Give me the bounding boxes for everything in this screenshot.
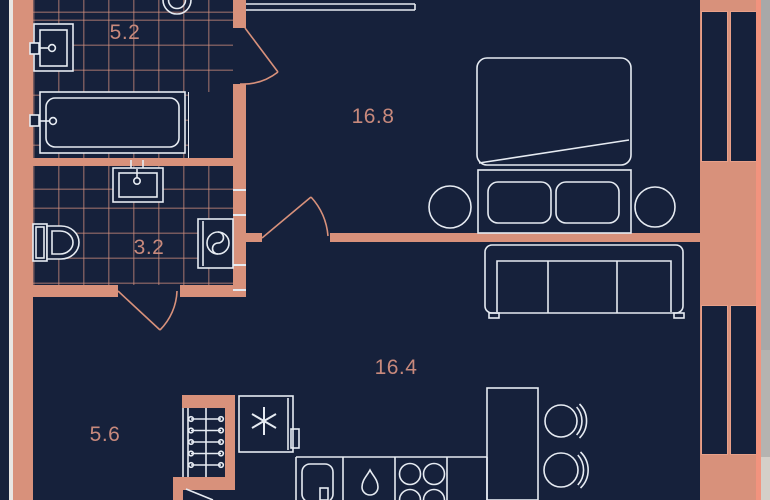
nightstand-icon [429,186,471,228]
washing-machine-icon [198,219,233,268]
ceiling-light-icon [163,0,191,14]
dining-table-icon [487,388,538,500]
door-swing-bedroom [262,197,328,238]
water-drop-icon [362,470,378,495]
chair-icon [545,404,587,438]
washbasin-icon [30,24,73,71]
kitchen-sink-icon [302,464,333,500]
nightstand-icon [635,187,675,227]
washbasin-small-icon [113,160,163,202]
pillow-icon [488,182,551,223]
floor-plan-canvas: 5.2 16.8 3.2 16.4 5.6 [0,0,770,500]
room-label-living-kitchen: 16.4 [375,356,418,380]
wall-tile-ticks [233,190,246,290]
room-label-bathroom-small: 3.2 [134,236,165,260]
toilet-icon [33,224,79,261]
sofa-icon [485,245,684,318]
stove-burners-icon [400,464,445,500]
door-swing-bathroom-large [240,28,278,84]
room-label-hallway: 5.6 [90,423,121,447]
double-bed-icon [477,58,631,233]
bathtub-icon [30,92,185,153]
refrigerator-icon [239,396,299,452]
wardrobe-hangers-icon [183,408,223,477]
top-partition-line [246,4,415,10]
room-label-bathroom-large: 5.2 [110,21,141,45]
chair-icon [544,452,588,488]
entry-door-leaf [186,489,213,500]
door-swing-bathroom-small [118,291,177,330]
room-label-bedroom: 16.8 [352,105,395,129]
pillow-icon [556,182,619,223]
